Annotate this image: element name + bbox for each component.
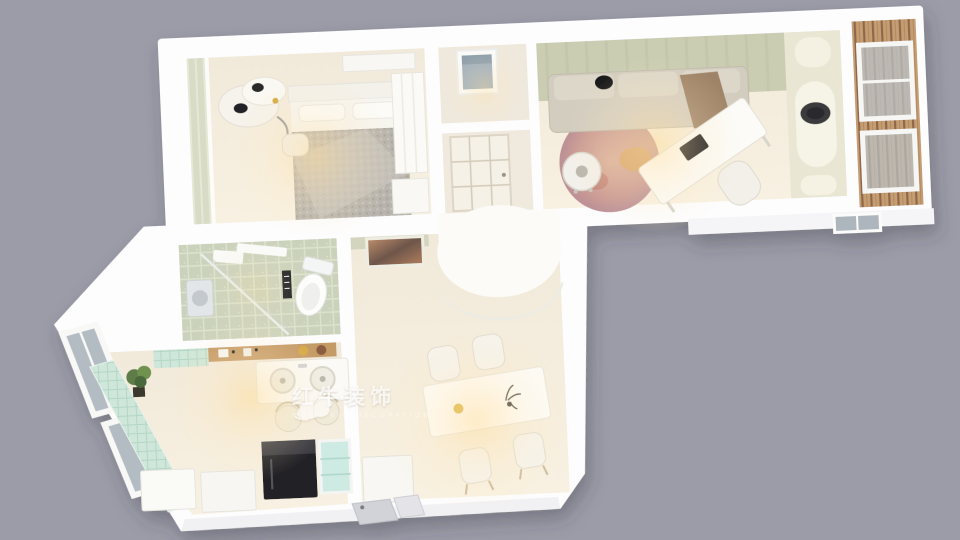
room-dining [349,202,575,520]
top-cabinet [343,53,416,72]
building [42,5,947,537]
arched-niche [800,174,837,196]
room-bedroom [186,48,432,244]
wall-mirror [367,236,424,266]
exterior-window [834,214,881,233]
window-frames [859,43,917,191]
arched-niche [794,37,831,69]
room-arch-nook [784,30,847,198]
floorplan-render: 红牛装饰 HONG NIU DECORATION [0,0,960,540]
glass-panel-door [450,135,511,211]
floorplan-svg [0,0,960,540]
glass-cabinet [319,440,351,493]
cabinet [140,469,196,511]
room-kitchen [62,312,354,520]
